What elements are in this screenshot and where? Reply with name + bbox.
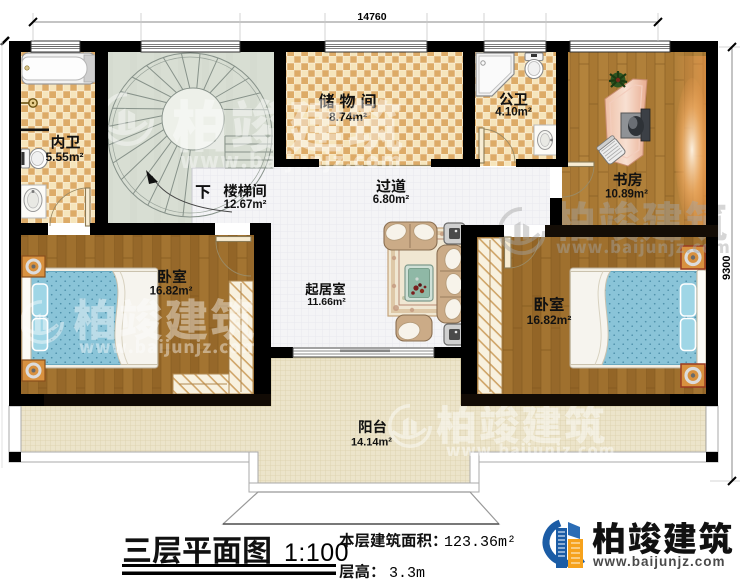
svg-text:1:100: 1:100 (284, 539, 349, 567)
svg-text:6.80m²: 6.80m² (373, 194, 410, 206)
svg-text:123.36m²: 123.36m² (444, 534, 516, 551)
svg-text:10.89m²: 10.89m² (605, 189, 648, 201)
svg-text:5.55m²: 5.55m² (45, 150, 83, 164)
svg-text:4.10m²: 4.10m² (495, 107, 532, 119)
svg-text:www.baijunjz.com: www.baijunjz.com (592, 554, 726, 569)
svg-text:3.3m: 3.3m (389, 565, 425, 582)
svg-text:16.82m²: 16.82m² (527, 313, 572, 327)
svg-text:16.82m²: 16.82m² (150, 286, 193, 298)
svg-text:14760: 14760 (357, 11, 386, 23)
svg-text:9300: 9300 (721, 256, 733, 280)
svg-text:14.14m²: 14.14m² (351, 437, 392, 449)
svg-text:11.66m²: 11.66m² (307, 296, 346, 308)
svg-text:12.67m²: 12.67m² (224, 199, 267, 211)
